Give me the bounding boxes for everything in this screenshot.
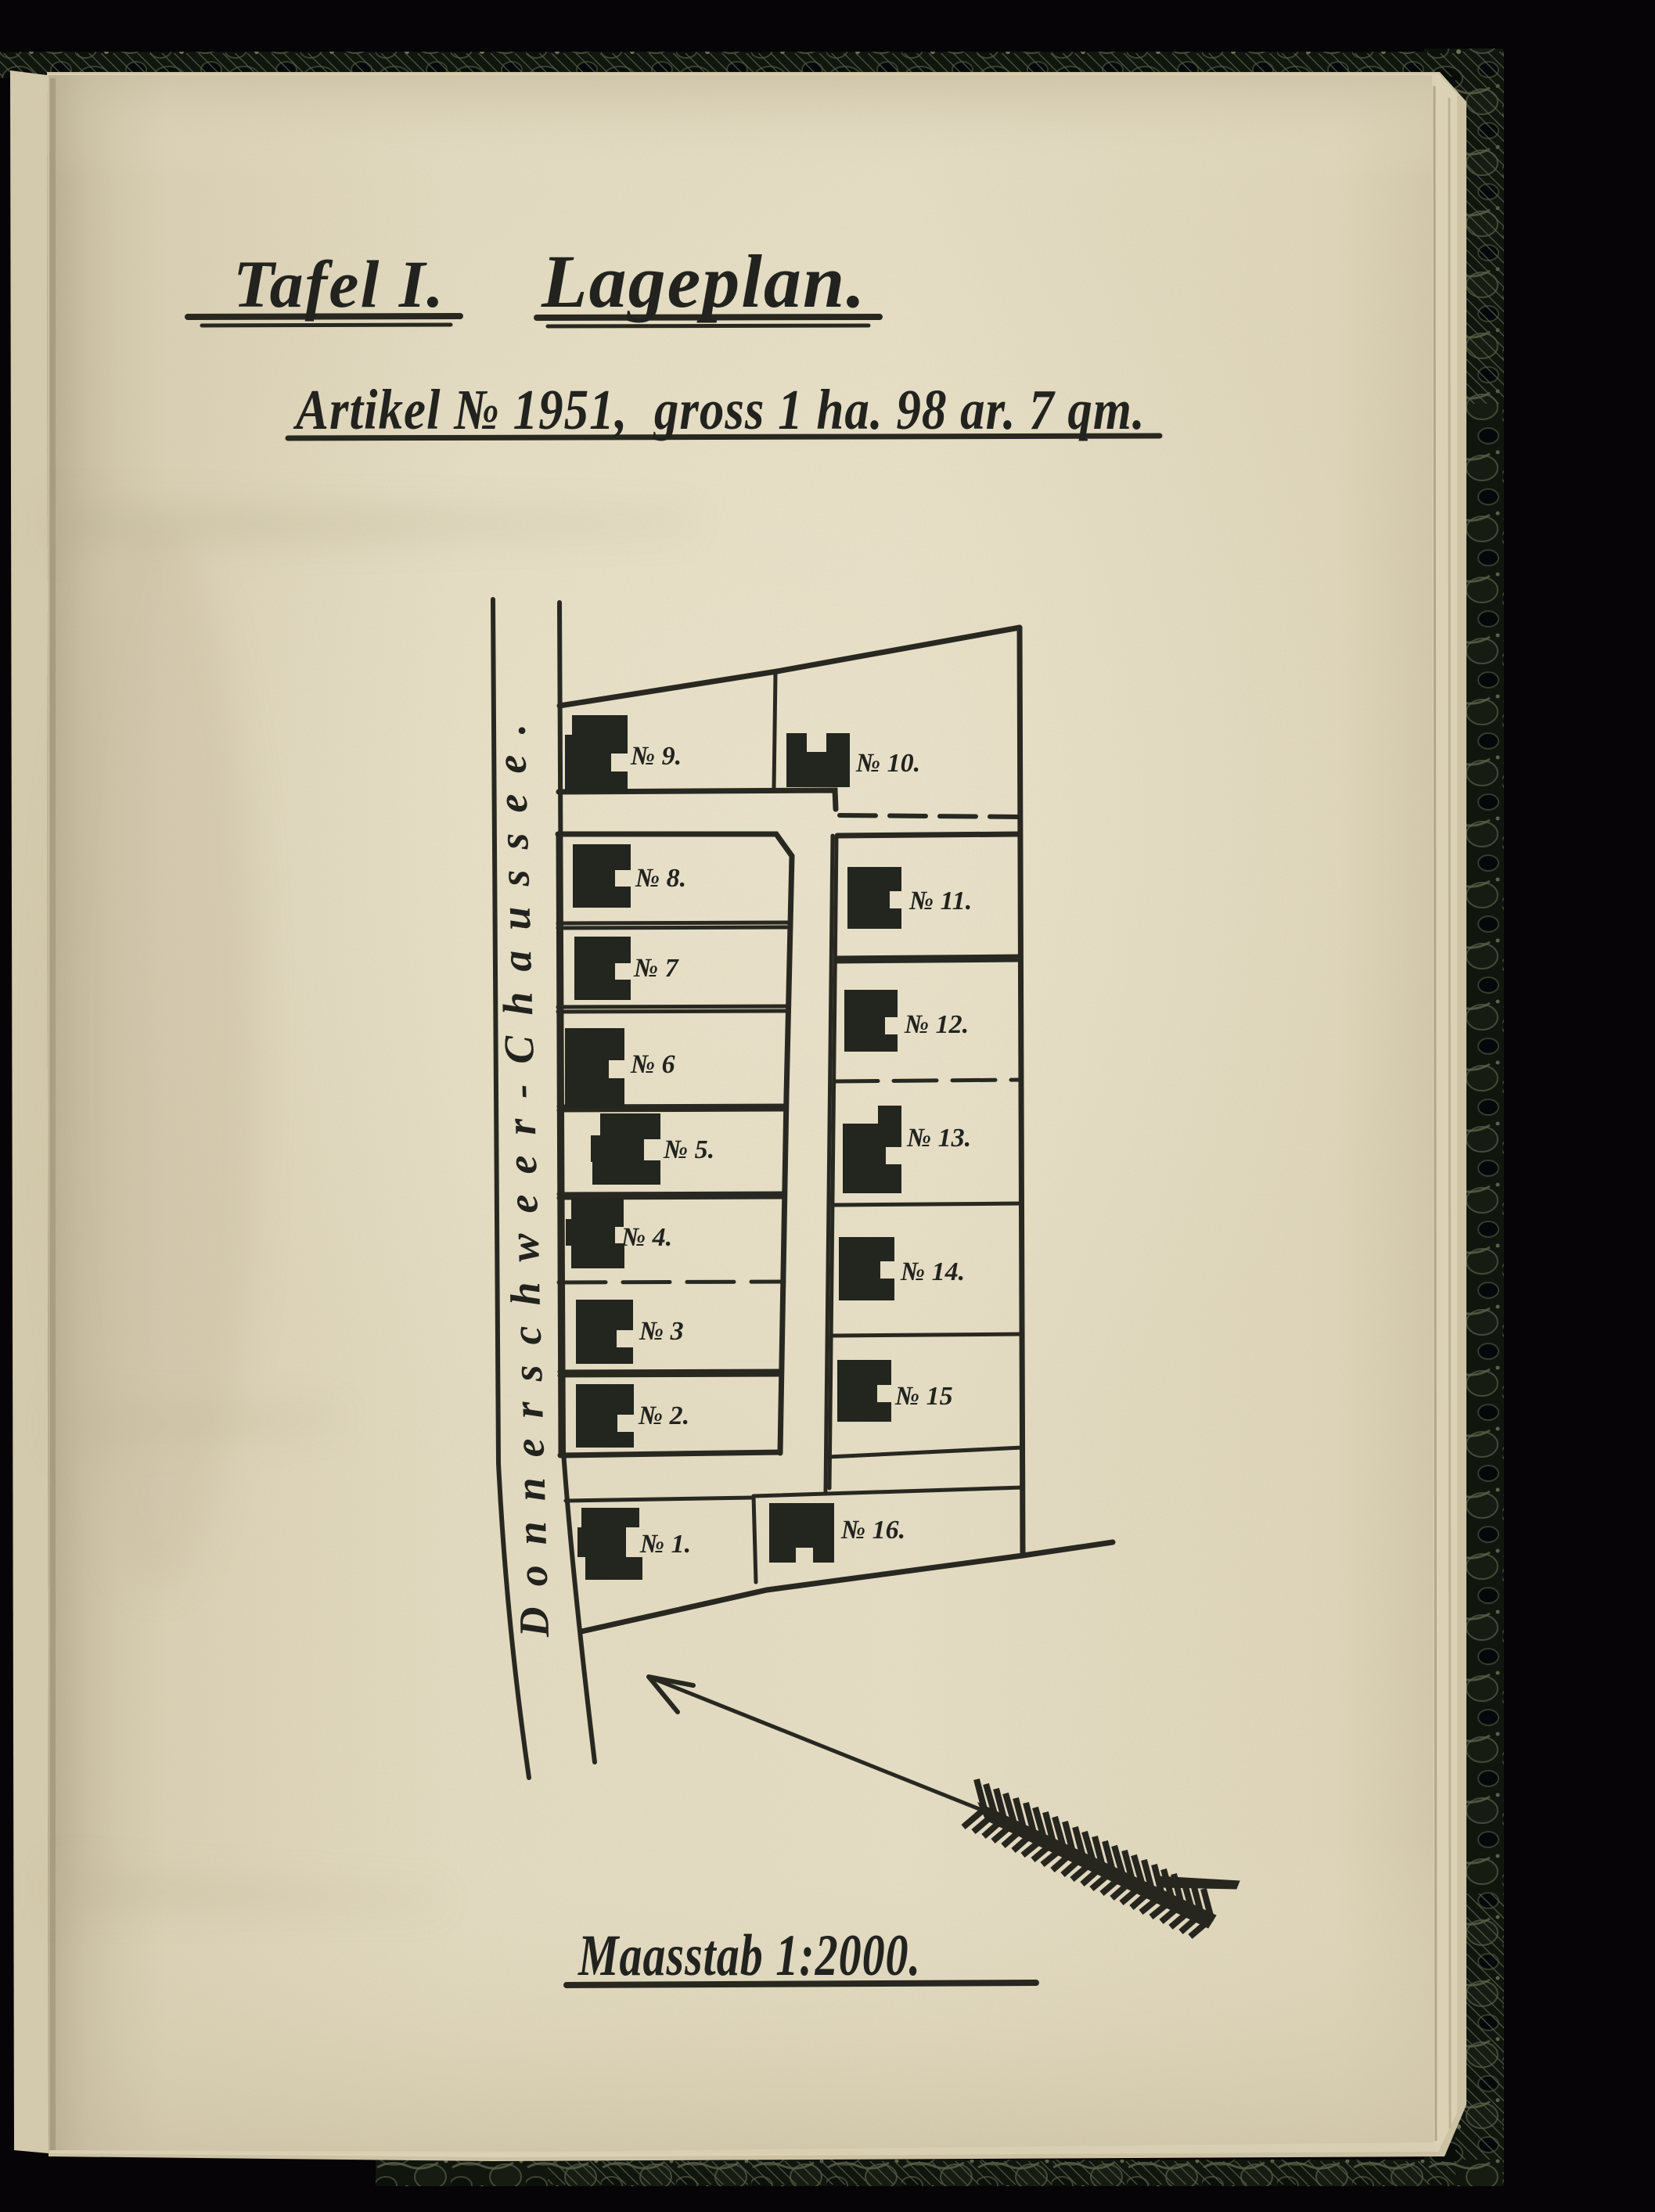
svg-text:№ 16.: № 16. xyxy=(840,1516,905,1545)
svg-text:№ 12.: № 12. xyxy=(904,1010,969,1039)
svg-text:№ 9.: № 9. xyxy=(630,742,682,771)
svg-text:Lageplan.: Lageplan. xyxy=(541,239,866,323)
svg-text:№ 5.: № 5. xyxy=(663,1135,714,1164)
svg-text:№ 2.: № 2. xyxy=(638,1401,689,1430)
svg-text:№ 13.: № 13. xyxy=(906,1124,971,1153)
svg-text:№ 14.: № 14. xyxy=(900,1257,965,1286)
svg-text:Maasstab 1:2000.: Maasstab 1:2000. xyxy=(577,1922,921,1988)
svg-text:№ 4.: № 4. xyxy=(621,1223,672,1252)
svg-text:Artikel № 1951, gross 1 ha. 9: Artikel № 1951, gross 1 ha. 98 ar. 7 qm. xyxy=(293,378,1145,441)
svg-text:№ 6: № 6 xyxy=(630,1050,675,1079)
svg-text:№ 11.: № 11. xyxy=(908,887,972,915)
svg-text:№ 10.: № 10. xyxy=(855,749,920,778)
svg-text:№ 1.: № 1. xyxy=(639,1530,691,1559)
svg-text:№ 15: № 15 xyxy=(894,1382,953,1411)
svg-text:№ 3: № 3 xyxy=(639,1317,684,1346)
svg-text:№ 8.: № 8. xyxy=(635,864,686,893)
svg-text:Tafel I.: Tafel I. xyxy=(233,246,445,322)
svg-text:№ 7: № 7 xyxy=(633,954,680,983)
